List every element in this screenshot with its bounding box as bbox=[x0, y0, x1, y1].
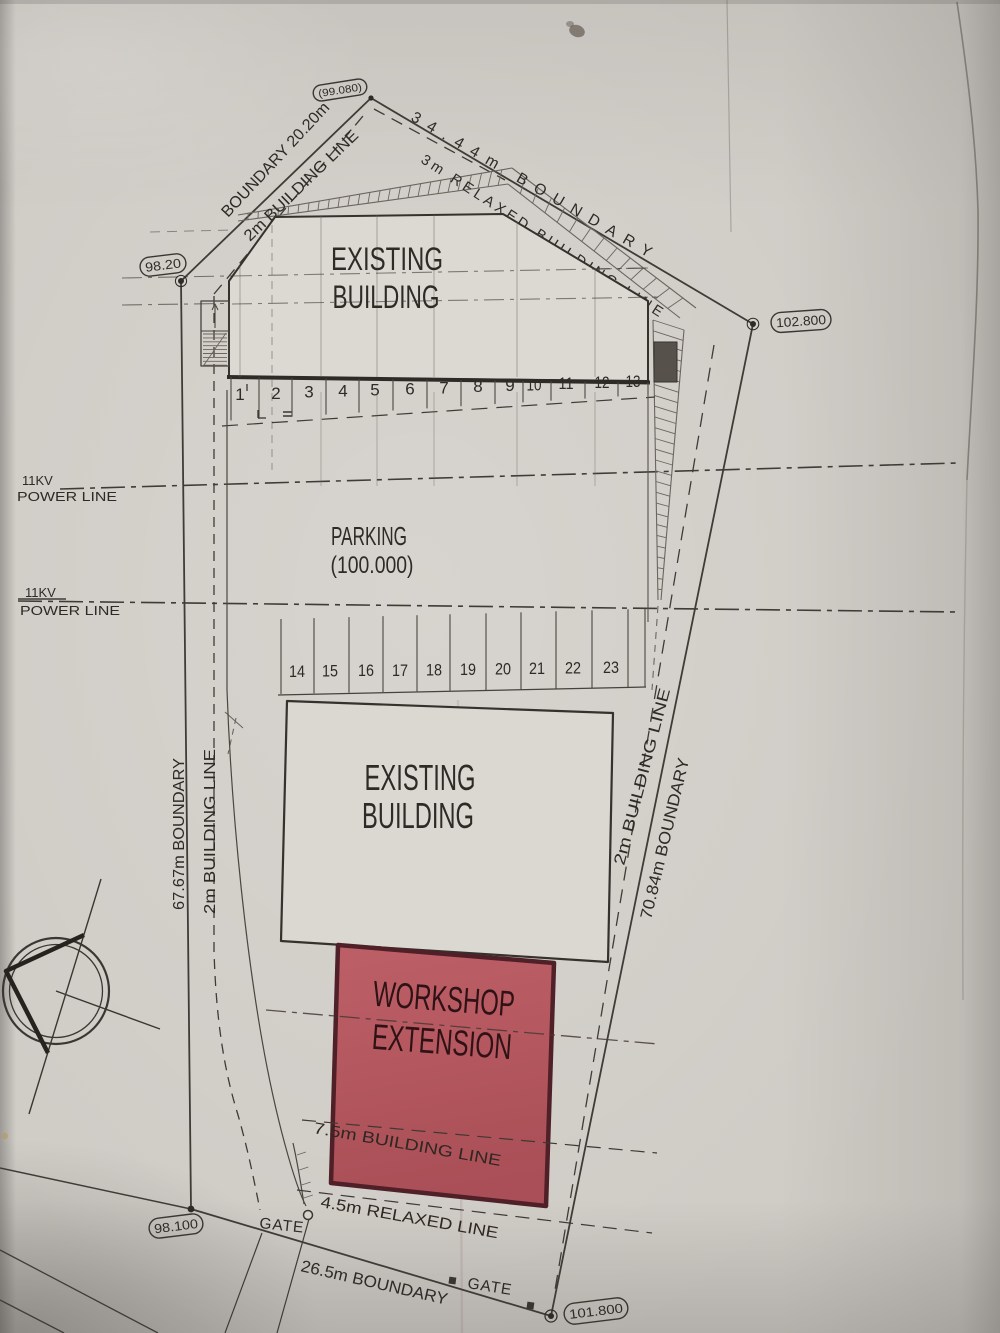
svg-text:POWER LINE: POWER LINE bbox=[20, 603, 120, 618]
svg-text:17: 17 bbox=[392, 661, 408, 680]
svg-text:EXISTING: EXISTING bbox=[365, 757, 476, 798]
svg-text:15: 15 bbox=[322, 662, 338, 681]
svg-text:11: 11 bbox=[559, 374, 574, 393]
svg-text:1: 1 bbox=[235, 385, 244, 404]
svg-text:PARKING: PARKING bbox=[331, 521, 407, 551]
svg-text:67.67m BOUNDARY: 67.67m BOUNDARY bbox=[171, 758, 188, 910]
svg-text:9: 9 bbox=[505, 376, 514, 395]
svg-text:7: 7 bbox=[439, 378, 448, 397]
svg-text:(100.000): (100.000) bbox=[331, 552, 414, 579]
svg-text:6: 6 bbox=[405, 379, 414, 398]
svg-text:12: 12 bbox=[595, 373, 610, 392]
svg-text:18: 18 bbox=[426, 660, 442, 679]
svg-text:BUILDING: BUILDING bbox=[333, 279, 440, 315]
svg-text:19: 19 bbox=[460, 660, 476, 679]
svg-text:14: 14 bbox=[289, 662, 305, 681]
svg-text:5: 5 bbox=[370, 381, 379, 400]
svg-text:2m BUILDING LINE: 2m BUILDING LINE bbox=[202, 749, 219, 914]
svg-text:23: 23 bbox=[603, 658, 619, 677]
svg-text:3: 3 bbox=[304, 383, 313, 402]
svg-text:11KV: 11KV bbox=[25, 585, 56, 600]
svg-text:POWER LINE: POWER LINE bbox=[17, 489, 117, 504]
svg-text:EXISTING: EXISTING bbox=[331, 241, 443, 277]
svg-text:11KV: 11KV bbox=[22, 473, 53, 488]
svg-text:8: 8 bbox=[473, 377, 482, 396]
svg-text:21: 21 bbox=[529, 659, 545, 678]
svg-text:20: 20 bbox=[495, 660, 511, 679]
svg-text:13: 13 bbox=[626, 372, 641, 391]
svg-text:4: 4 bbox=[338, 382, 347, 401]
svg-text:BUILDING: BUILDING bbox=[362, 795, 474, 836]
svg-text:22: 22 bbox=[565, 659, 581, 678]
svg-text:10: 10 bbox=[527, 375, 542, 394]
svg-text:16: 16 bbox=[358, 661, 374, 680]
svg-text:2: 2 bbox=[271, 384, 280, 403]
